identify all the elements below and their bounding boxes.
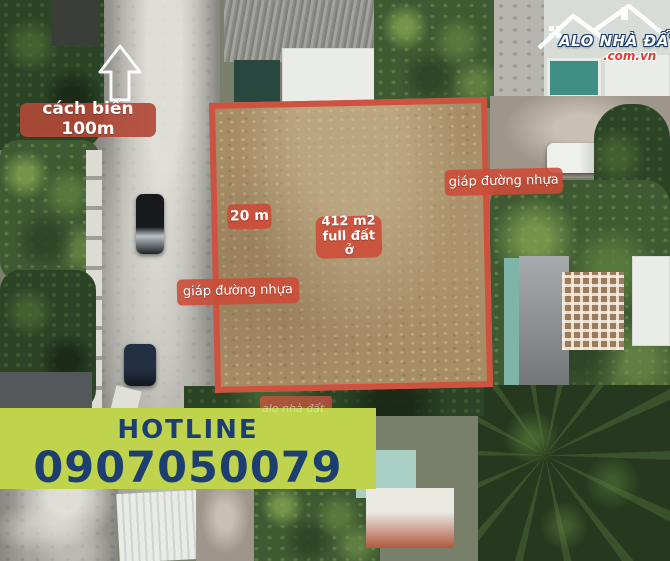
tile-courtyard: [562, 272, 624, 350]
white-structure-bottom-right: [632, 256, 670, 346]
teal-wall-strip: [504, 258, 519, 390]
white-roof-bottom: [116, 490, 200, 561]
dark-roof-left-bottom: [0, 372, 92, 412]
road-label-left: giáp đường nhựa: [177, 277, 300, 306]
orange-roof-bottom: [366, 488, 454, 548]
plot-area-line2: full đất ở: [316, 229, 383, 260]
brand-watermark-text: alo nhà đất: [262, 402, 324, 415]
plot-width-label: 20 m: [227, 204, 272, 230]
dark-shed-top: [234, 60, 280, 102]
logo-domain: .com.vn: [603, 49, 656, 63]
white-roof-top: [282, 48, 376, 106]
road-bottom-left: [0, 488, 118, 561]
dirt-path-bottom: [196, 488, 254, 561]
brand-watermark: alo nhà đất: [262, 402, 324, 415]
beach-distance-label: cách biển 100m: [20, 103, 156, 137]
brand-logo: ALO NHÀ ĐẤT .com.vn: [533, 0, 670, 70]
beach-distance-text: cách biển 100m: [20, 100, 156, 139]
spiky-plants-bottom-right: [478, 385, 670, 561]
dark-roof-top-left: [52, 0, 100, 46]
logo-title: ALO NHÀ ĐẤT: [559, 32, 670, 50]
land-plot-boundary: 20 m 412 m2 full đất ở giáp đường nhựa g…: [209, 97, 493, 393]
plot-area-label: 412 m2 full đất ở: [315, 215, 382, 258]
vegetation-bottom-center: [250, 488, 380, 561]
hotline-number: 0907050079: [0, 443, 376, 493]
road-label-right: giáp đường nhựa: [444, 168, 563, 196]
arrow-up-icon: [98, 44, 142, 104]
dark-blue-car: [124, 344, 156, 386]
plot-width-text: 20 m: [230, 208, 269, 225]
logo-domain-text: .com.vn: [603, 49, 656, 63]
hotline-label: HOTLINE: [0, 415, 376, 445]
road-label-left-text: giáp đường nhựa: [183, 283, 293, 300]
trees-left-upper: [0, 140, 100, 280]
road-label-right-text: giáp đường nhựa: [449, 173, 559, 190]
trees-top-center: [374, 0, 498, 108]
black-car: [136, 194, 164, 254]
hotline-banner: HOTLINE 0907050079: [0, 408, 376, 489]
aerial-photo-listing: 20 m 412 m2 full đất ở giáp đường nhựa g…: [0, 0, 670, 561]
logo-title-text: ALO NHÀ ĐẤT: [559, 32, 670, 50]
